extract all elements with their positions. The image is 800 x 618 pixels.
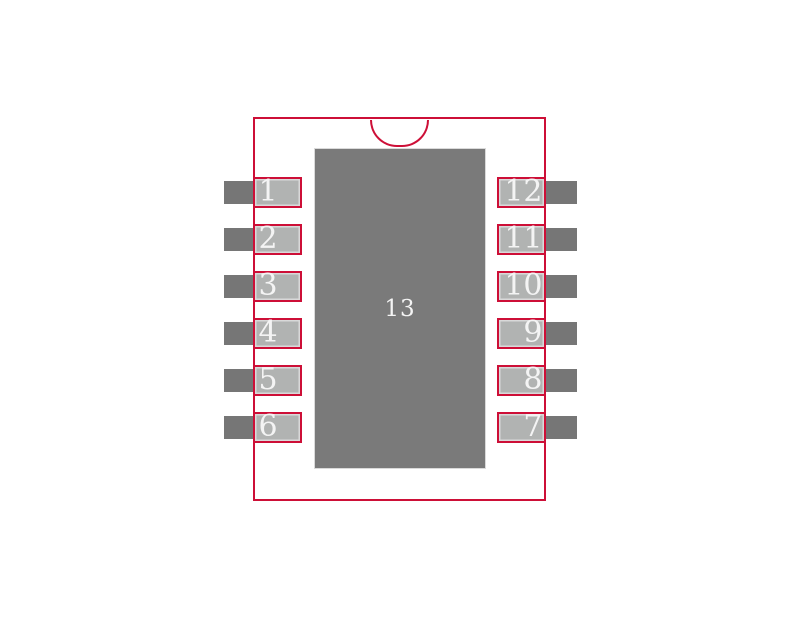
pad-7: 7 bbox=[497, 412, 546, 443]
lead-stub-pad-10 bbox=[544, 275, 577, 298]
lead-stub-pad-1 bbox=[224, 181, 254, 204]
pad-number: 12 bbox=[504, 177, 542, 207]
pad-4: 4 bbox=[253, 318, 302, 349]
pad-6: 6 bbox=[253, 412, 302, 443]
pad-11: 11 bbox=[497, 224, 546, 255]
pad-number: 7 bbox=[523, 412, 542, 442]
pad-5: 5 bbox=[253, 365, 302, 396]
pad-number: 6 bbox=[259, 412, 278, 442]
lead-stub-pad-2 bbox=[224, 228, 254, 251]
lead-stub-pad-3 bbox=[224, 275, 254, 298]
lead-stub-pad-4 bbox=[224, 322, 254, 345]
lead-stub-pad-11 bbox=[544, 228, 577, 251]
lead-stub-pad-8 bbox=[544, 369, 577, 392]
pad-number: 1 bbox=[259, 177, 278, 207]
pad-number: 5 bbox=[259, 365, 278, 395]
pad-number: 11 bbox=[504, 224, 542, 254]
pad-number: 3 bbox=[259, 271, 278, 301]
pad-10: 10 bbox=[497, 271, 546, 302]
pad-number: 8 bbox=[523, 365, 542, 395]
pad-number: 4 bbox=[259, 318, 278, 348]
pad-8: 8 bbox=[497, 365, 546, 396]
thermal-pad-13: 13 bbox=[315, 149, 485, 468]
pad-12: 12 bbox=[497, 177, 546, 208]
pad-number: 9 bbox=[523, 318, 542, 348]
lead-stub-pad-12 bbox=[544, 181, 577, 204]
footprint-diagram: 13 112211310495867 bbox=[0, 0, 800, 618]
thermal-pad-number: 13 bbox=[384, 296, 415, 322]
lead-stub-pad-9 bbox=[544, 322, 577, 345]
pad-number: 10 bbox=[504, 271, 542, 301]
pad-9: 9 bbox=[497, 318, 546, 349]
lead-stub-pad-5 bbox=[224, 369, 254, 392]
pad-number: 2 bbox=[259, 224, 278, 254]
pad-2: 2 bbox=[253, 224, 302, 255]
pad-1: 1 bbox=[253, 177, 302, 208]
lead-stub-pad-6 bbox=[224, 416, 254, 439]
pad-3: 3 bbox=[253, 271, 302, 302]
lead-stub-pad-7 bbox=[544, 416, 577, 439]
